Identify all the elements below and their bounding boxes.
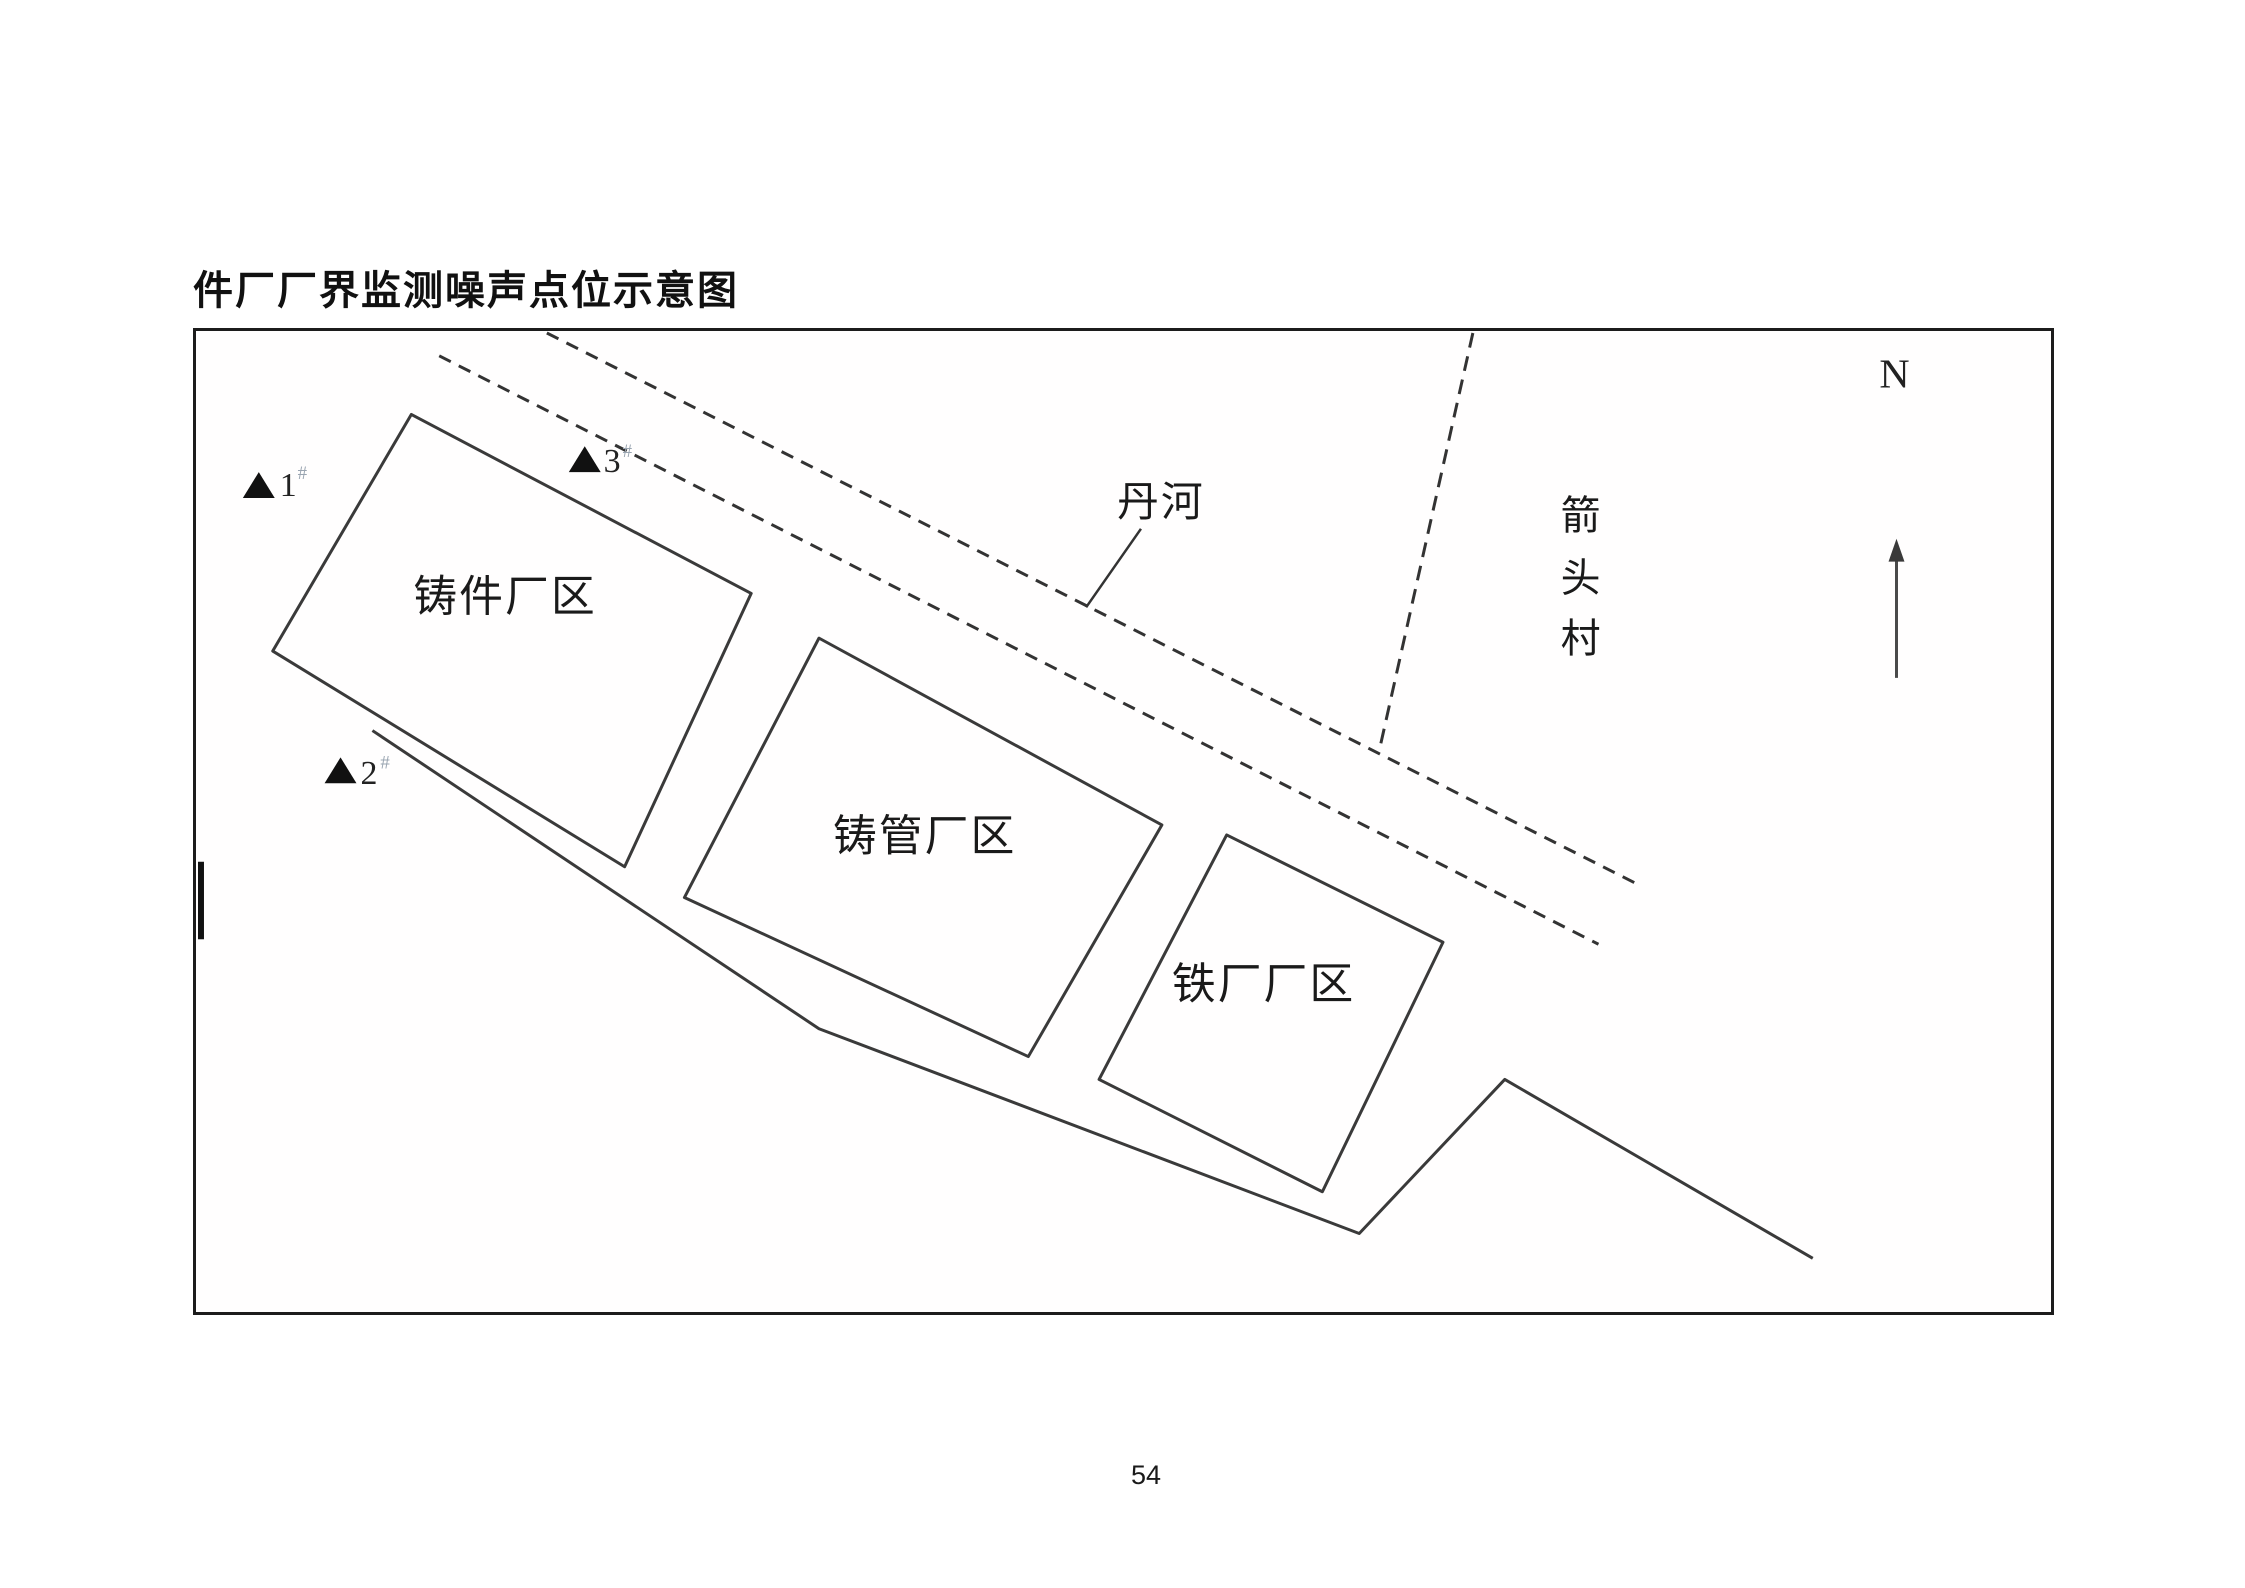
factory-area-casting-label: 铸件厂区 (413, 573, 596, 621)
noise-monitoring-point-3: 3 # (569, 441, 633, 480)
noise-monitoring-point-1: 1 # (243, 463, 308, 504)
village-road-dashed-line (1380, 333, 1473, 746)
river-leader-line (1086, 529, 1141, 608)
document-page: 件厂厂界监测噪声点位示意图 铸件厂区 铸管厂区 铁厂厂区 丹河 (0, 0, 2245, 1588)
factory-area-pipe-label: 铸管厂区 (833, 813, 1016, 861)
monitoring-point-triangle-icon (325, 757, 357, 783)
boundary-road-line (372, 731, 1812, 1259)
monitoring-point-hash: # (623, 441, 633, 462)
river-bank-upper-line (547, 333, 1638, 885)
left-border-tick-mark (198, 862, 204, 940)
compass: N (1879, 352, 1909, 678)
factory-area-iron-outline (1099, 835, 1443, 1192)
monitoring-point-hash: # (298, 463, 308, 484)
village-label: 箭 头 村 (1561, 494, 1601, 661)
page-number: 54 (1100, 1460, 1192, 1491)
village-char-2: 头 (1561, 556, 1601, 600)
page-title: 件厂厂界监测噪声点位示意图 (193, 258, 739, 316)
site-map-canvas: 铸件厂区 铸管厂区 铁厂厂区 丹河 箭 头 村 N (196, 331, 2051, 1312)
north-arrow-head-icon (1889, 539, 1905, 562)
factory-area-iron-label: 铁厂厂区 (1172, 961, 1355, 1009)
village-char-1: 箭 (1561, 494, 1601, 538)
river-danhe (439, 333, 1638, 944)
monitoring-point-triangle-icon (569, 446, 601, 472)
north-label: N (1879, 352, 1909, 398)
site-map-frame: 铸件厂区 铸管厂区 铁厂厂区 丹河 箭 头 村 N (193, 328, 2054, 1315)
monitoring-point-number: 1 (280, 467, 297, 504)
monitoring-point-number: 3 (604, 443, 621, 480)
noise-monitoring-point-2: 2 # (325, 752, 391, 792)
monitoring-point-number: 2 (360, 755, 377, 792)
river-label: 丹河 (1117, 480, 1205, 526)
monitoring-point-hash: # (380, 752, 390, 773)
factory-area-casting-outline (273, 414, 751, 866)
monitoring-point-triangle-icon (243, 472, 275, 498)
village-char-3: 村 (1561, 617, 1601, 661)
